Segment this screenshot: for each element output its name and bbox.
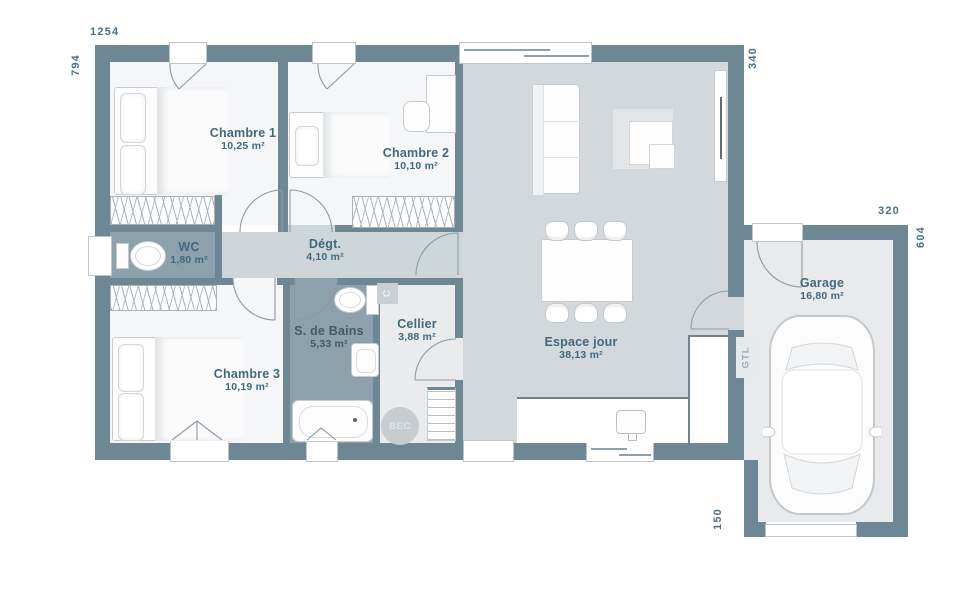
kitchen-sink (616, 410, 646, 434)
pillow (118, 344, 144, 392)
window-chambre2 (312, 42, 356, 64)
room-label-espace-jour: Espace jour 38,13 m² (544, 335, 617, 362)
wall-garage-left-low (744, 460, 758, 537)
room-area: 10,19 m² (214, 381, 280, 394)
pillow (295, 126, 319, 166)
wall-hallway-bottom-3 (337, 278, 463, 285)
dim-garage-width: 320 (878, 205, 900, 217)
toilet-bathroom-bowl (334, 287, 366, 313)
gtl-label: GTL (740, 347, 751, 369)
duvet (323, 112, 390, 178)
room-name: WC (170, 240, 208, 254)
wall-cellier-living-upper (455, 285, 463, 338)
room-area: 10,10 m² (383, 160, 449, 173)
room-area: 38,13 m² (544, 349, 617, 362)
dining-table (541, 239, 633, 302)
room-name: Chambre 3 (214, 367, 280, 381)
floor-hallway-door-gap (288, 225, 335, 232)
floor-living-garage-door-gap (728, 297, 744, 330)
room-label-salle-de-bains: S. de Bains 5,33 m² (294, 324, 364, 351)
wall-closet-stub (215, 194, 222, 225)
gtl-box: GTL (736, 337, 755, 378)
wall-garage-bottom-2 (856, 522, 908, 537)
toilet-wc-bowl (130, 241, 166, 271)
room-area: 16,80 m² (800, 290, 844, 303)
dim-house-depth: 794 (70, 45, 84, 85)
window-chambre1 (169, 42, 207, 64)
dining-chair (603, 303, 627, 323)
room-name: Garage (800, 276, 844, 290)
kitchen-counter-horizontal (517, 397, 688, 443)
room-label-degagement: Dégt. 4,10 m² (306, 237, 344, 264)
bathtub (292, 400, 373, 442)
room-area: 10,25 m² (210, 140, 276, 153)
water-heater-circle: BEC (381, 407, 419, 445)
water-heater-label: BEC (389, 421, 411, 432)
dining-chair (574, 303, 598, 323)
dim-garage-depth: 604 (915, 217, 929, 257)
closet-chambre2 (352, 196, 455, 228)
closet-chambre1 (110, 196, 215, 225)
tv-unit (714, 70, 727, 182)
sofa-back (533, 85, 544, 195)
wall-hallway-bottom-1 (222, 278, 233, 285)
dining-chair (603, 221, 627, 241)
room-label-chambre1: Chambre 1 10,25 m² (210, 126, 276, 153)
room-area: 4,10 m² (306, 251, 344, 264)
wall-garage-top-1 (744, 225, 752, 240)
room-name: Cellier (397, 317, 437, 331)
washbasin-inner (356, 349, 376, 373)
room-label-wc: WC 1,80 m² (170, 240, 208, 267)
kitchen-slide-line (591, 448, 627, 450)
pillow (118, 393, 144, 441)
dim-house-right-side: 340 (747, 38, 761, 78)
room-area: 3,88 m² (397, 331, 437, 344)
room-label-chambre2: Chambre 2 10,10 m² (383, 146, 449, 173)
floor-bathroom-door-gap (295, 278, 337, 285)
desk-chambre2 (426, 75, 456, 133)
wall-garage-right (893, 225, 908, 537)
pillow (120, 145, 146, 195)
dim-garage-offset: 150 (712, 499, 726, 539)
room-label-chambre3: Chambre 3 10,19 m² (214, 367, 280, 394)
pillow (120, 93, 146, 143)
room-area: 1,80 m² (170, 254, 208, 267)
window-wc (88, 236, 112, 276)
door-panel-garage-entry (752, 223, 803, 242)
sofa-cushion-line (543, 157, 581, 158)
dining-chair (545, 303, 569, 323)
wall-wc-bottom (110, 278, 222, 285)
wall-chambre2-living (455, 62, 463, 232)
room-name: S. de Bains (294, 324, 364, 338)
floor-chambre3-door-gap (233, 278, 277, 285)
floor-cellier-door-gap (455, 338, 463, 380)
bathtub-inner (299, 406, 368, 438)
dining-chair (574, 221, 598, 241)
boiler-box: C (377, 283, 398, 304)
sofa-cushion-line (543, 121, 581, 122)
door-panel-garage-gate (765, 524, 857, 537)
dining-chair (545, 221, 569, 241)
wall-cellier-living-lower (455, 380, 463, 443)
room-name: Chambre 1 (210, 126, 276, 140)
room-name: Dégt. (306, 237, 344, 251)
boiler-label: C (382, 290, 393, 297)
window-kitchen (586, 440, 654, 462)
water-heater-unit (427, 387, 456, 441)
wall-chambre1-chambre2 (278, 62, 288, 232)
wall-wc-right (215, 232, 222, 278)
window-chambre3 (170, 440, 229, 462)
bathtub-drain (353, 418, 357, 422)
room-label-garage: Garage 16,80 m² (800, 276, 844, 303)
floor-plan: C BEC GTL (0, 0, 960, 600)
closet-chambre3 (110, 285, 217, 311)
kitchen-sink-spout (628, 434, 637, 441)
wall-wc-top (110, 225, 222, 232)
bay-slide-line (464, 49, 550, 51)
wall-chambre3-bathroom (283, 285, 290, 443)
room-name: Espace jour (544, 335, 617, 349)
window-living-bottom (463, 440, 514, 462)
side-table (649, 144, 675, 169)
kitchen-counter-vertical (688, 335, 728, 443)
tv-screen (720, 97, 722, 159)
wall-hallway-bottom-2 (277, 278, 295, 285)
bed-chambre2 (289, 112, 387, 178)
room-area: 5,33 m² (294, 338, 364, 351)
window-bay-living (459, 42, 592, 64)
sofa (532, 84, 580, 194)
toilet-wc-tank (116, 243, 129, 269)
room-label-cellier: Cellier 3,88 m² (397, 317, 437, 344)
wall-shared-garage-upper (728, 62, 744, 297)
desk-chair (403, 101, 430, 132)
bay-slide-line (524, 55, 589, 57)
window-bathroom (306, 440, 338, 462)
room-name: Chambre 2 (383, 146, 449, 160)
kitchen-slide-line (619, 454, 651, 456)
dim-house-width: 1254 (90, 26, 119, 38)
